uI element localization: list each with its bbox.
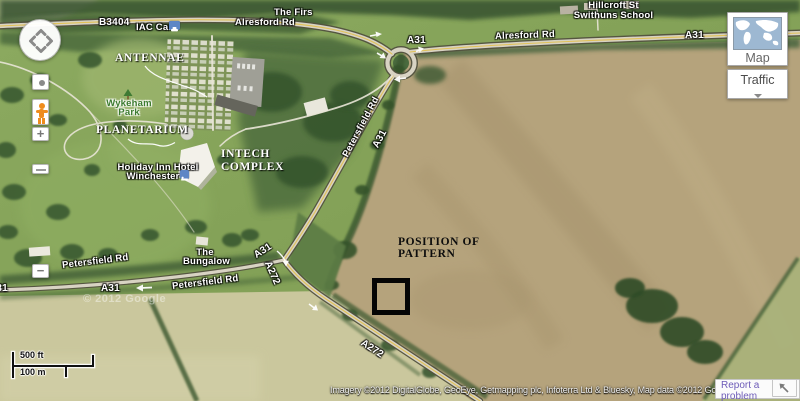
- map-view-button[interactable]: Map: [727, 12, 788, 66]
- pan-right-icon[interactable]: [48, 37, 52, 45]
- poi-label-wykeham-park: Park: [103, 107, 155, 118]
- dot-icon: [39, 80, 45, 86]
- annotation-antennae: ANTENNAE: [115, 52, 184, 64]
- zoom-slider-handle[interactable]: [32, 164, 49, 174]
- pan-up-icon[interactable]: [37, 31, 45, 35]
- pattern-marker: [372, 278, 410, 315]
- nw-arrow-icon: [773, 380, 796, 396]
- google-maps-satellite-view: B3404 IAC Cars The Firs Alresford Rd A31…: [0, 0, 800, 401]
- poi-label-swithuns-school: Swithuns School: [566, 10, 661, 21]
- center-map-button[interactable]: [32, 74, 49, 90]
- annotation-planetarium: PLANETARIUM: [96, 124, 189, 136]
- scale-meters-label: 100 m: [20, 367, 46, 377]
- pegman-button[interactable]: [32, 99, 49, 125]
- map-button-label: Map: [728, 51, 787, 65]
- scale-bar: 500 ft 100 m: [10, 350, 104, 380]
- traffic-button-label: Traffic: [728, 73, 787, 87]
- annotation-position-line2: PATTERN: [398, 248, 455, 260]
- pan-down-icon[interactable]: [37, 48, 45, 52]
- zoom-out-button[interactable]: −: [32, 264, 49, 278]
- pan-control[interactable]: [19, 19, 61, 61]
- road-label-a31-left-clipped: A31: [0, 283, 8, 294]
- annotation-intech-line1: INTECH: [221, 148, 270, 160]
- scale-feet-label: 500 ft: [20, 350, 44, 360]
- attribution-collapse-button[interactable]: [772, 379, 797, 397]
- road-label-alresford-rd-left: Alresford Rd: [235, 17, 295, 28]
- poi-label-bungalow: Bungalow: [183, 256, 227, 267]
- caret-down-icon: [754, 94, 762, 98]
- road-label-alresford-rd-right: Alresford Rd: [495, 29, 555, 42]
- handle-ridge: [36, 169, 46, 171]
- road-label-b3404: B3404: [99, 17, 129, 28]
- road-label-a31-top-right: A31: [685, 30, 704, 41]
- road-label-a31-roundabout: A31: [407, 35, 426, 46]
- traffic-button[interactable]: Traffic: [727, 69, 788, 99]
- world-map-thumbnail-icon: [733, 17, 782, 50]
- annotation-intech-line2: COMPLEX: [221, 161, 284, 173]
- attribution-text: Imagery ©2012 DigitalGlobe, GeoEye, Getm…: [330, 385, 738, 395]
- zoom-in-button[interactable]: +: [32, 127, 49, 141]
- lodging-icon: [180, 170, 189, 179]
- google-watermark: © 2012 Google: [83, 293, 166, 305]
- pan-left-icon[interactable]: [31, 37, 35, 45]
- car-icon: [169, 21, 180, 30]
- annotation-position-line1: POSITION OF: [398, 236, 480, 248]
